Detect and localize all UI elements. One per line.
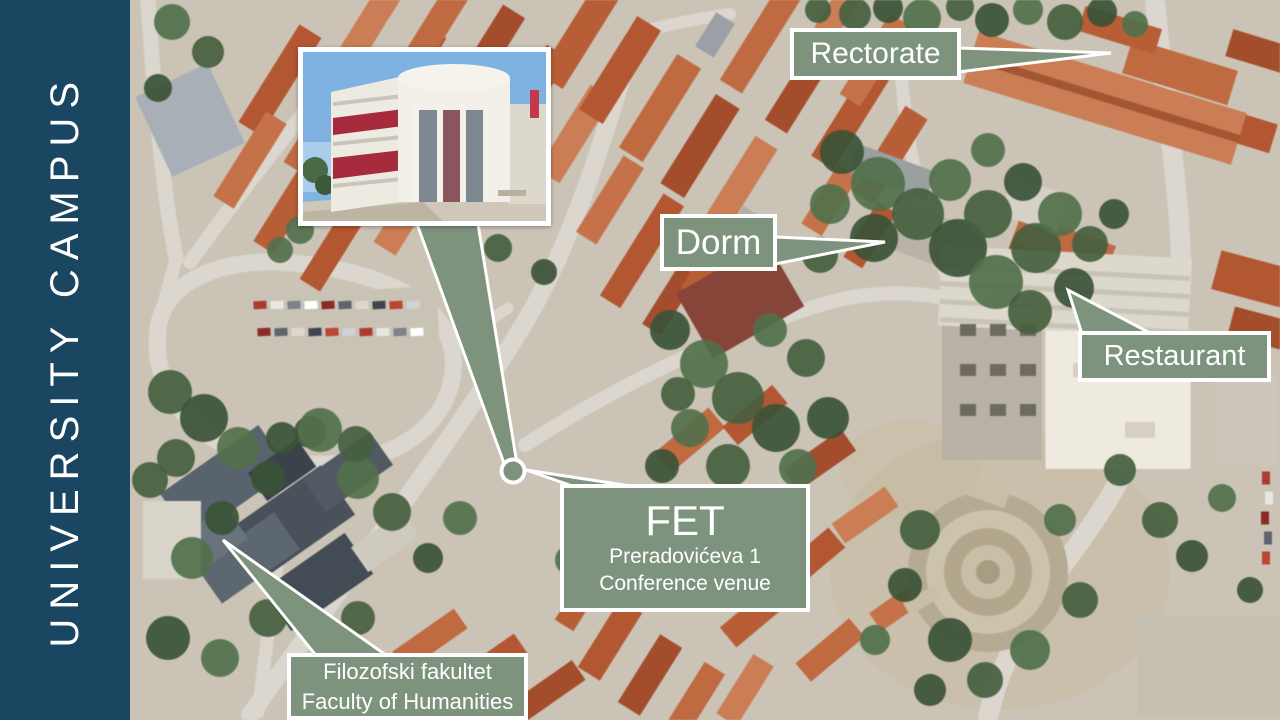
fet-venue-note: Conference venue xyxy=(599,570,771,597)
restaurant-callout-pointer xyxy=(1068,290,1152,334)
dorm-label: Dorm xyxy=(676,223,762,263)
restaurant-label: Restaurant xyxy=(1104,340,1246,373)
fet-callout: FET Preradovićeva 1 Conference venue xyxy=(560,484,810,612)
dorm-callout: Dorm xyxy=(660,214,777,271)
fet-location-marker xyxy=(502,460,525,483)
faculty-label-hr: Filozofski fakultet xyxy=(323,657,492,687)
rectorate-label: Rectorate xyxy=(810,37,940,71)
sidebar: UNIVERSITY CAMPUS xyxy=(0,0,130,720)
fet-building-photo xyxy=(298,47,551,226)
faculty-callout: Filozofski fakultet Faculty of Humanitie… xyxy=(287,653,528,720)
fet-title: FET xyxy=(645,499,724,543)
restaurant-callout: Restaurant xyxy=(1078,331,1271,382)
fet-photo-pointer xyxy=(417,224,517,466)
rectorate-callout-pointer xyxy=(958,48,1111,72)
dorm-callout-pointer xyxy=(775,237,885,264)
faculty-callout-pointer xyxy=(223,540,390,658)
campus-satellite-map: Rectorate Dorm Restaurant FET Preradović… xyxy=(130,0,1280,720)
fet-address: Preradovićeva 1 xyxy=(609,543,761,570)
faculty-label-en: Faculty of Humanities xyxy=(302,687,514,717)
slide-title-vertical: UNIVERSITY CAMPUS xyxy=(43,73,88,648)
campus-slide: UNIVERSITY CAMPUS xyxy=(0,0,1280,720)
fet-building-photo-illustration xyxy=(303,52,546,221)
rectorate-callout: Rectorate xyxy=(790,28,961,80)
